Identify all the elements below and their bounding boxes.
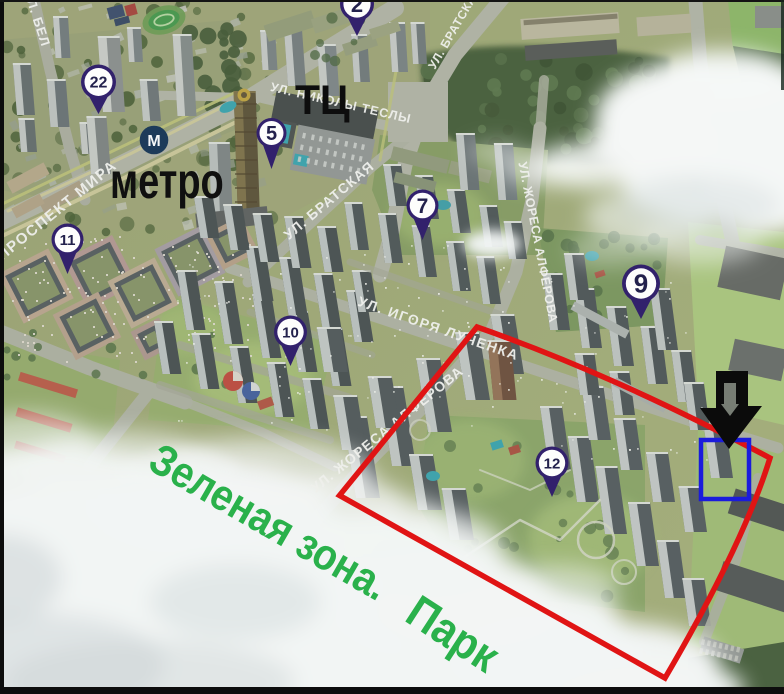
svg-text:М: М xyxy=(147,133,160,150)
svg-text:ТЦ: ТЦ xyxy=(295,76,350,123)
svg-text:5: 5 xyxy=(266,123,277,145)
svg-text:12: 12 xyxy=(544,455,561,472)
svg-text:7: 7 xyxy=(417,195,429,218)
svg-text:11: 11 xyxy=(60,232,76,249)
svg-text:9: 9 xyxy=(634,269,648,299)
svg-text:2: 2 xyxy=(351,0,363,17)
svg-text:10: 10 xyxy=(282,324,299,341)
svg-text:22: 22 xyxy=(90,75,108,92)
svg-text:метро: метро xyxy=(110,154,224,209)
